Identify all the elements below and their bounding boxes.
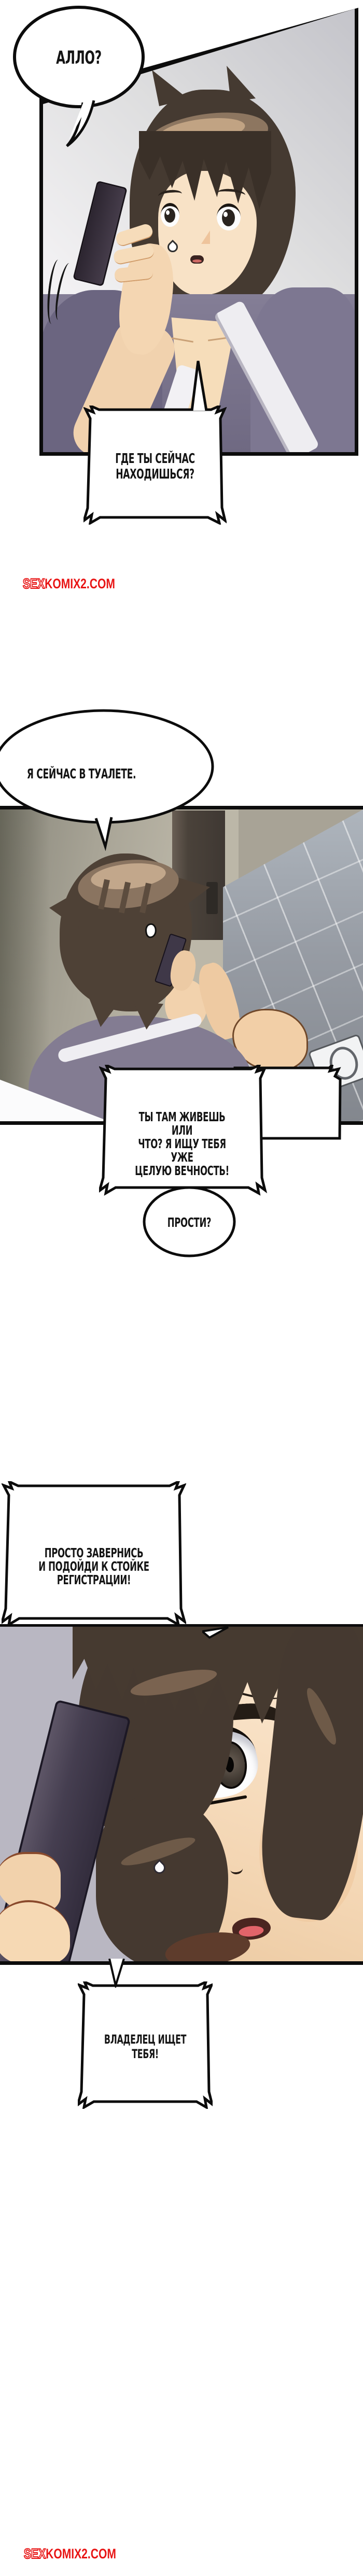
watermark-outline-part: SEX <box>24 2546 46 2561</box>
eye-glint <box>224 212 228 217</box>
eye-right <box>217 204 241 230</box>
speech-bubble-tail <box>187 359 212 411</box>
watermark-solid-part: KOMIX2.COM <box>45 576 115 591</box>
watermark-outline-part: SEX <box>23 576 45 591</box>
speech-bubble-living: ТЫ ТАМ ЖИВЕШЬ ИЛИ ЧТО? Я ИЩУ ТЕБЯ УЖЕ ЦЕ… <box>99 1065 353 1197</box>
speech-bubble-sorry: ПРОСТИ? <box>142 1186 236 1258</box>
speech-bubble-outline <box>12 4 146 155</box>
comic-page: АЛЛО? ГДЕ ТЫ СЕЙЧАС НАХОДИШЬСЯ? SEXKOMIX… <box>0 0 363 2576</box>
eye-left <box>161 203 179 227</box>
speech-bubble-text: ВЛАДЕЛЕЦ ИЩЕТ ТЕБЯ! <box>101 2032 190 2062</box>
panel-3-border <box>0 1624 363 1965</box>
mouth-inner <box>192 259 202 263</box>
speech-bubble-where: ГДЕ ТЫ СЕЙЧАС НАХОДИШЬСЯ? <box>83 406 227 525</box>
speech-bubble-outline <box>0 708 216 860</box>
mouth <box>190 255 204 264</box>
speech-bubble-text: ПРОСТО ЗАВЕРНИСЬ И ПОДОЙДИ К СТОЙКЕ РЕГИ… <box>33 1546 155 1587</box>
speech-bubble-spike <box>202 1626 230 1639</box>
speech-bubble-front-desk: ПРОСТО ЗАВЕРНИСЬ И ПОДОЙДИ К СТОЙКЕ РЕГИ… <box>2 1481 186 1627</box>
speech-bubble-text: Я СЕЙЧАС В ТУАЛЕТЕ. <box>22 766 140 783</box>
site-watermark: SEXKOMIX2.COM <box>24 2546 116 2562</box>
speech-bubble-toilet: Я СЕЙЧАС В ТУАЛЕТЕ. <box>0 708 216 860</box>
speech-bubble-owner: ВЛАДЕЛЕЦ ИЩЕТ ТЕБЯ! <box>78 1981 213 2109</box>
speech-bubble-text: ТЫ ТАМ ЖИВЕШЬ ИЛИ ЧТО? Я ИЩУ ТЕБЯ УЖЕ ЦЕ… <box>127 1110 236 1178</box>
speech-bubble-text: ГДЕ ТЫ СЕЙЧАС НАХОДИШЬСЯ? <box>108 451 202 482</box>
iris <box>222 209 235 226</box>
watermark-solid-part: KOMIX2.COM <box>46 2546 116 2561</box>
iris <box>164 208 175 223</box>
speech-bubble-text: ПРОСТИ? <box>158 1215 220 1231</box>
panel-3-art <box>0 1627 363 1961</box>
eye-glint <box>166 210 170 215</box>
speech-bubble-hello: АЛЛО? <box>12 4 146 155</box>
speech-bubble-text: АЛЛО? <box>35 48 123 69</box>
speech-bubble-tail <box>105 1959 130 1988</box>
site-watermark: SEXKOMIX2.COM <box>23 576 115 592</box>
